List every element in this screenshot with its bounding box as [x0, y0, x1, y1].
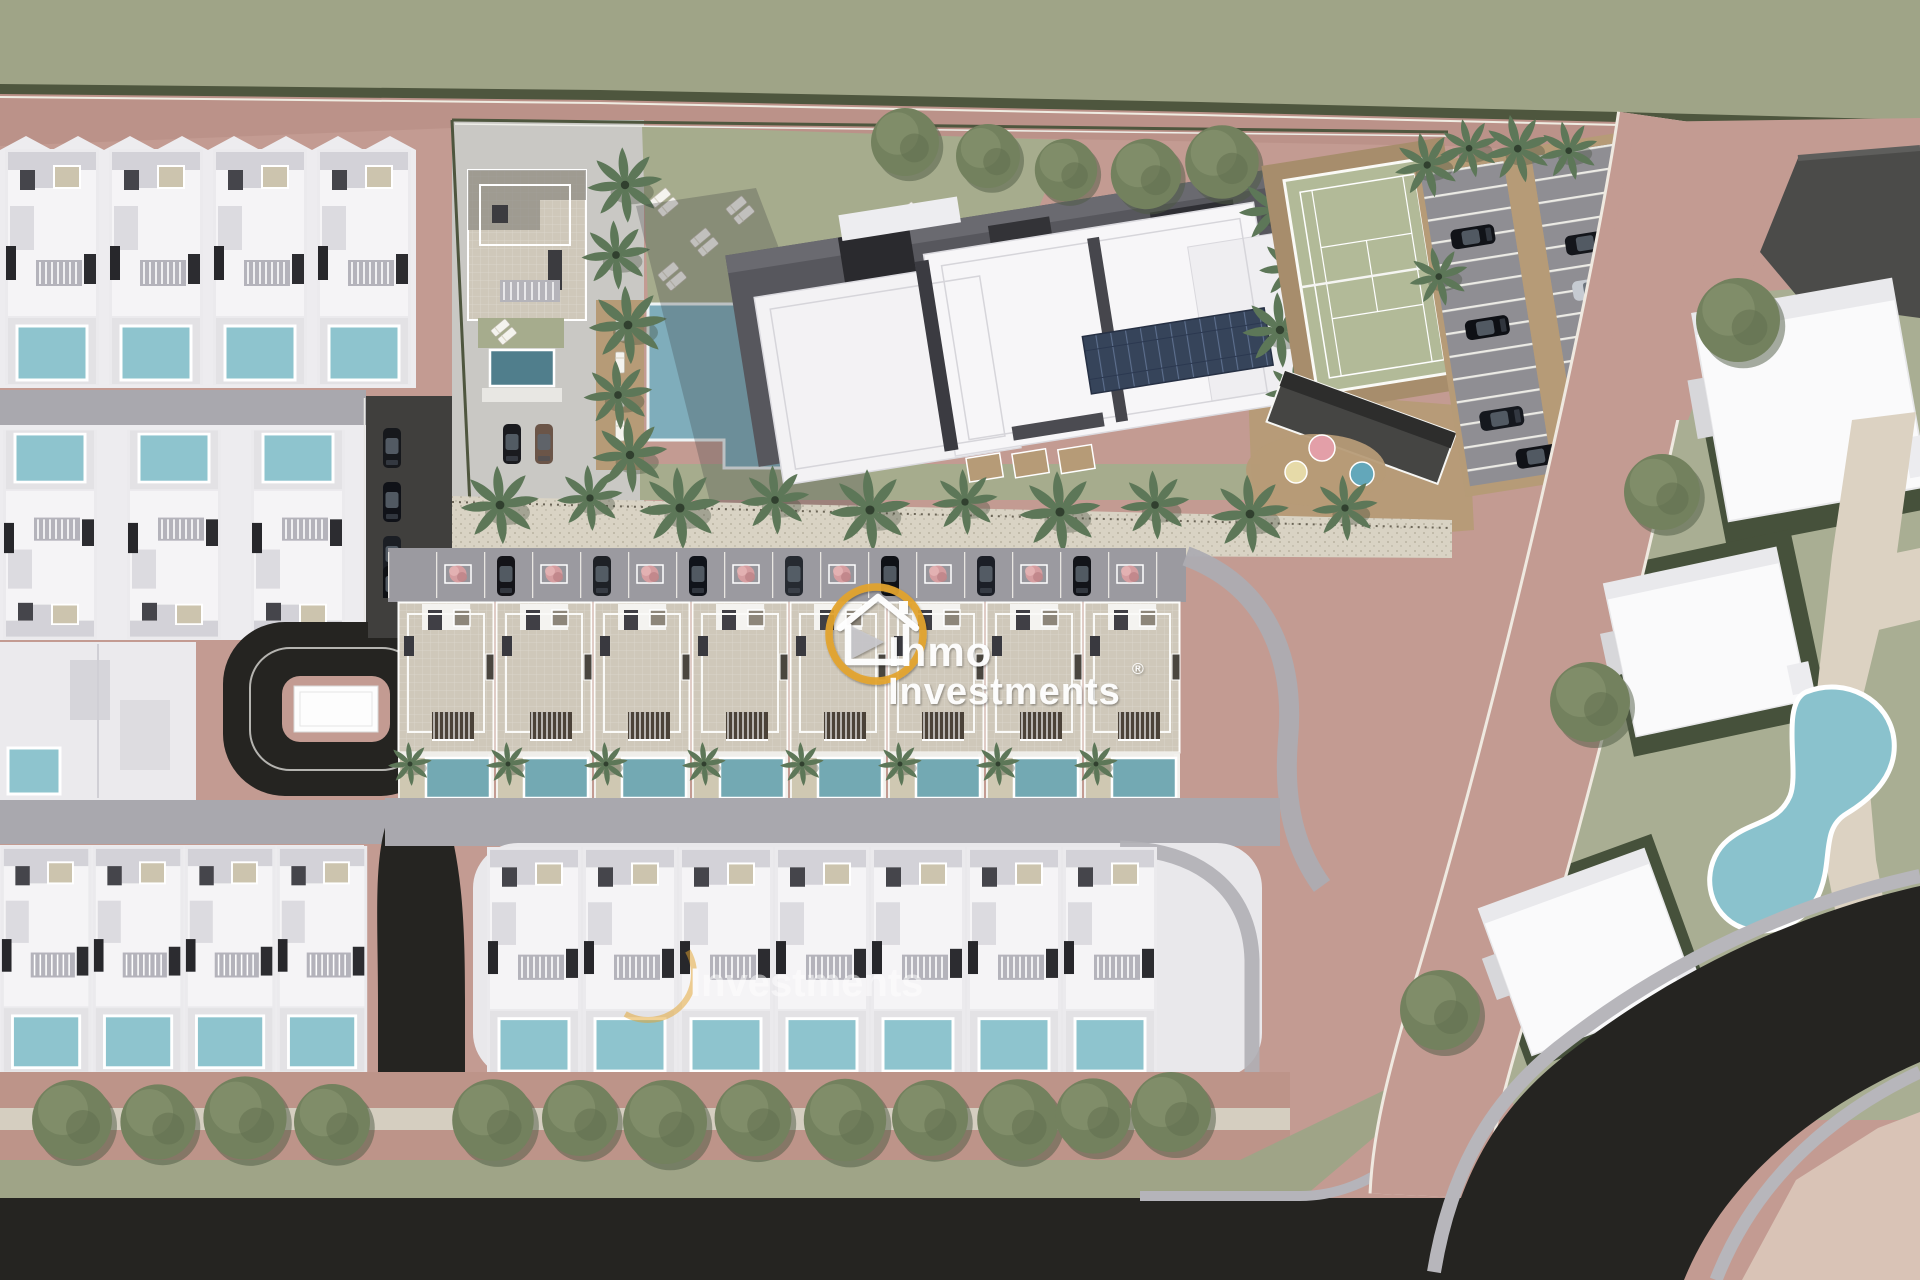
watermark-brand-line2: Investments: [888, 671, 1121, 713]
villa: [317, 149, 411, 385]
left-villa-block: [0, 136, 416, 1075]
parked-car: [689, 556, 707, 596]
play-circle-pink: [1309, 435, 1335, 461]
parked-car: [535, 424, 553, 464]
villa: [487, 847, 581, 1076]
villa: [213, 149, 307, 385]
parked-car: [593, 556, 611, 596]
verge-grass: [0, 1160, 1290, 1202]
parked-car: [383, 428, 401, 468]
main-road-south: [0, 1198, 1480, 1280]
townhouse: [584, 603, 690, 801]
play-circle-sand: [1285, 461, 1307, 483]
registered-mark: ®: [1132, 661, 1144, 678]
villa: [3, 430, 97, 640]
villa: [251, 430, 345, 640]
sidewalk: [0, 800, 392, 844]
rear-lane: [385, 798, 1280, 846]
parked-car: [785, 556, 803, 596]
villa: [583, 847, 677, 1076]
garden-path: [1862, 548, 1920, 632]
play-circle-blue: [1350, 462, 1374, 486]
residential-street: [388, 548, 1186, 602]
site-plan-canvas: Investments Inmo Investments ®: [0, 0, 1920, 1280]
villa: [1063, 847, 1157, 1076]
villa-row-b2: [0, 642, 196, 800]
villa: [185, 846, 275, 1073]
show-villa-pool: [490, 350, 554, 386]
villa: [1, 846, 91, 1073]
watermark-brand-line1: Inmo: [888, 628, 992, 675]
private-pool: [8, 748, 60, 794]
island-building: [294, 686, 378, 732]
parked-car: [383, 482, 401, 522]
townhouse: [388, 603, 494, 801]
watermark-text: Investments: [690, 961, 923, 1005]
sidewalk: [0, 390, 366, 426]
site-plan-render: Investments Inmo Investments ®: [0, 0, 1920, 1280]
parked-car: [1073, 556, 1091, 596]
parked-car: [977, 556, 995, 596]
villa: [93, 846, 183, 1073]
townhouse: [682, 603, 788, 801]
villa: [277, 846, 367, 1073]
townhouse: [780, 603, 886, 801]
villa: [967, 847, 1061, 1076]
parked-car: [497, 556, 515, 596]
villa: [5, 149, 99, 385]
townhouse: [486, 603, 592, 801]
villa: [127, 430, 221, 640]
villa: [109, 149, 203, 385]
parked-car: [503, 424, 521, 464]
